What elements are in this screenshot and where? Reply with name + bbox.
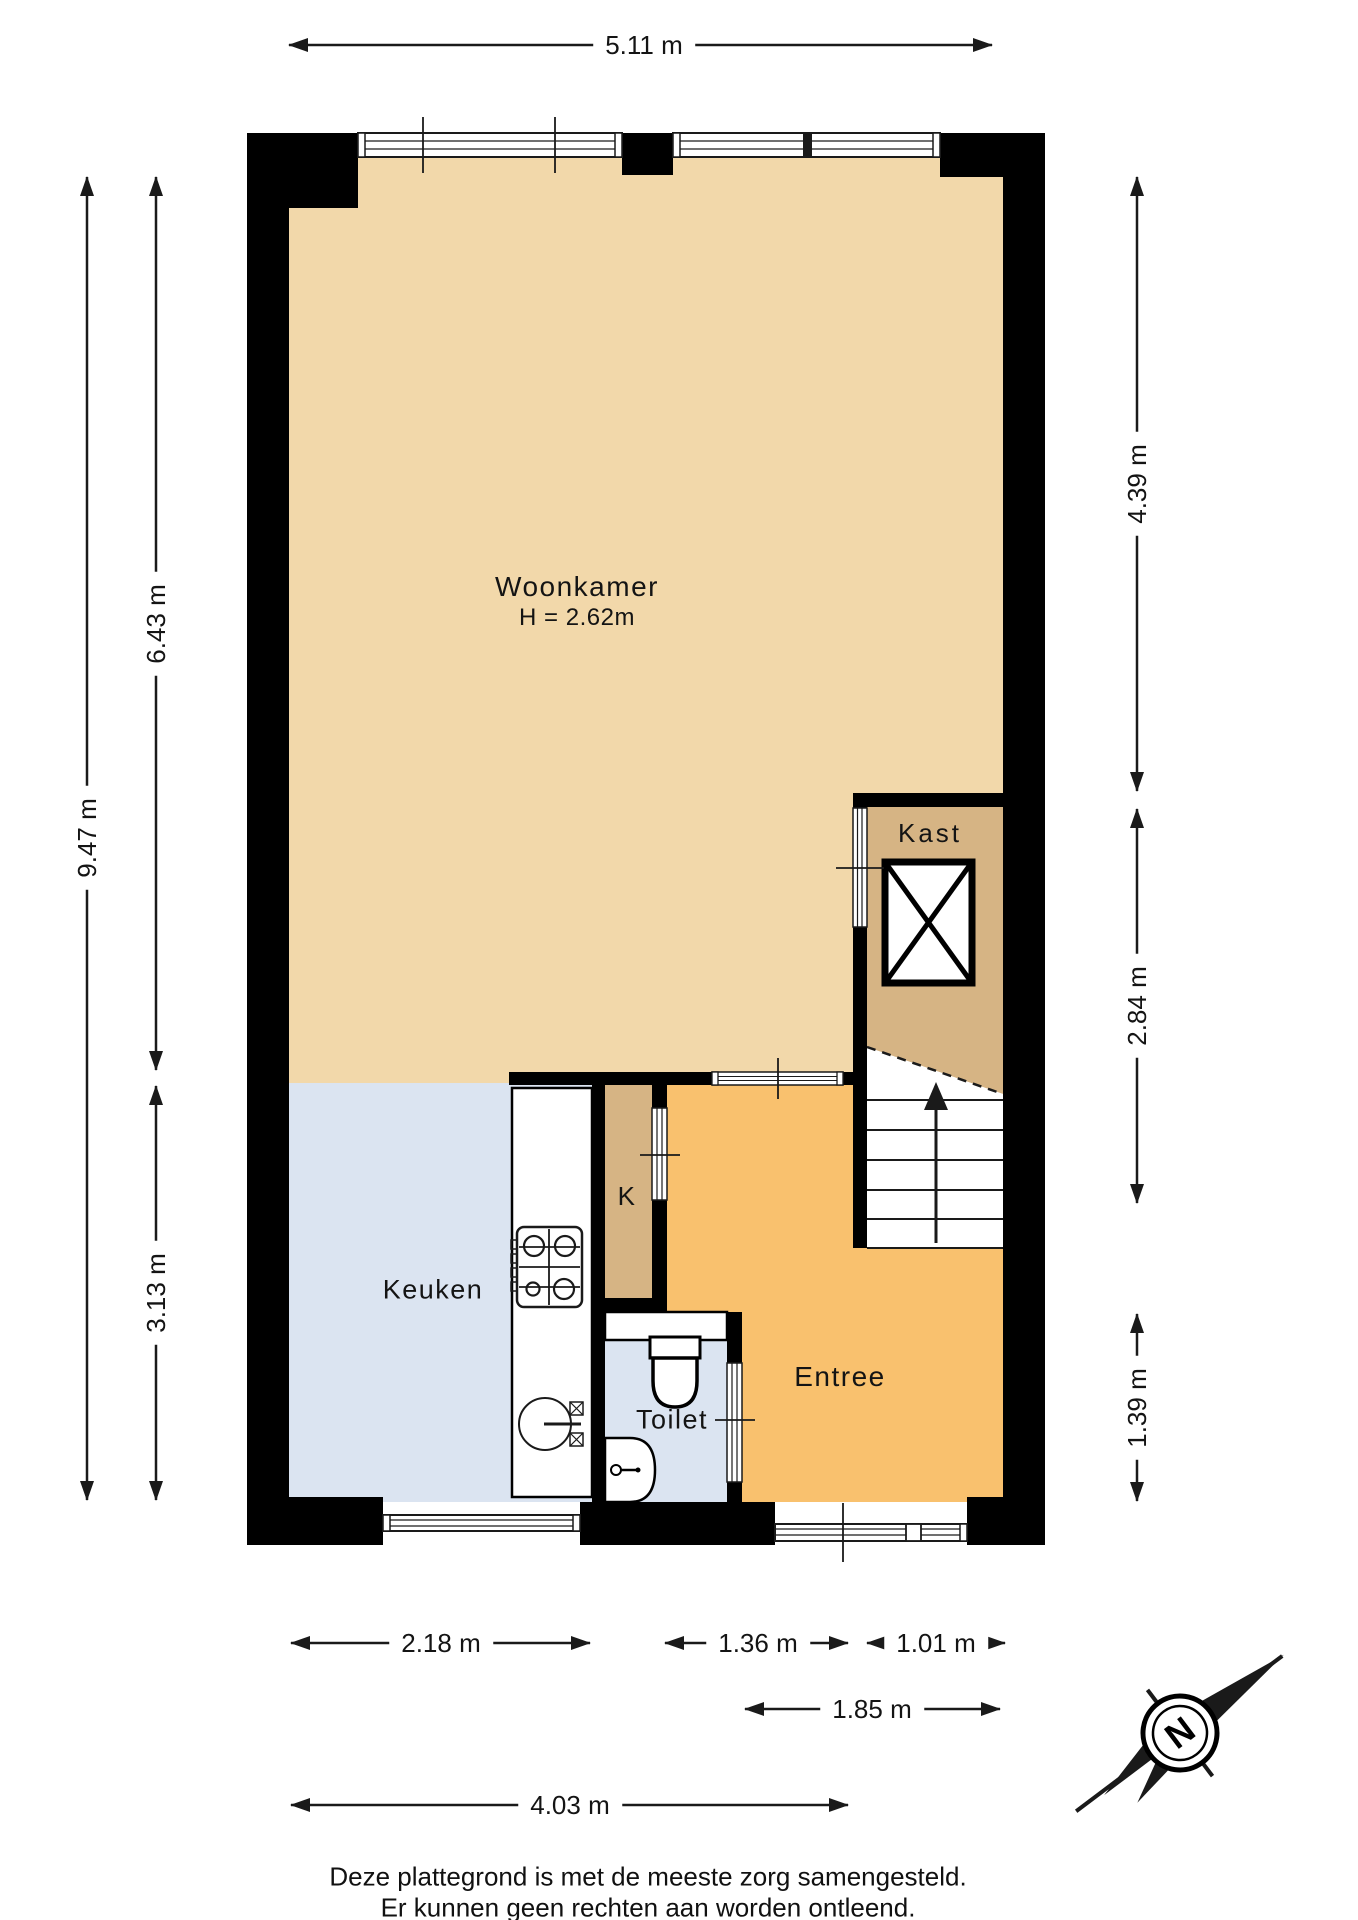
wall-top-left-corner <box>247 133 358 208</box>
room-label-toilet: Toilet <box>636 1407 708 1434</box>
dim-label-right-upper: 4.39 m <box>1122 432 1152 536</box>
wall-k-closet-bottom <box>605 1298 667 1312</box>
dim-label-top-width: 5.11 m <box>593 30 695 60</box>
dim-label-left-total: 9.47 m <box>72 786 102 890</box>
entree-floor-mid <box>667 1248 1003 1312</box>
dim-label-bottom-stairs: 1.01 m <box>884 1628 988 1658</box>
entree-floor-lower <box>742 1312 1003 1502</box>
dim-label-bottom-entree: 1.85 m <box>820 1694 924 1724</box>
floorplan-drawing: N <box>0 0 1358 1920</box>
woonkamer-floor-lower <box>289 793 853 1083</box>
wall-left <box>247 133 289 1545</box>
disclaimer-line-1: Deze plattegrond is met de meeste zorg s… <box>329 1862 966 1893</box>
toilet-sink-icon <box>605 1438 655 1502</box>
wall-bottom-left-corner <box>247 1497 383 1545</box>
wall-bottom-right-corner <box>967 1497 1045 1545</box>
wall-top-pier <box>622 133 673 175</box>
wall-bottom-middle <box>580 1502 775 1545</box>
woonkamer-floor <box>289 155 1003 793</box>
disclaimer-line-2: Er kunnen geen rechten aan worden ontlee… <box>381 1893 916 1920</box>
dim-label-right-middle: 2.84 m <box>1122 954 1152 1058</box>
room-label-k-closet: K <box>618 1183 637 1209</box>
dim-label-left-lower: 3.13 m <box>141 1241 171 1345</box>
front-door <box>775 1503 967 1562</box>
compass-icon: N <box>1044 1612 1317 1855</box>
window-top-2 <box>673 133 940 157</box>
room-label-keuken: Keuken <box>383 1277 484 1304</box>
room-label-woonkamer: Woonkamer <box>495 573 659 601</box>
dim-label-left-upper: 6.43 m <box>141 572 171 676</box>
wall-right <box>1003 133 1045 1545</box>
room-note-woonkamer-height: H = 2.62m <box>519 606 635 630</box>
shaft-box-icon <box>885 862 972 983</box>
wall-top-right-corner <box>940 133 1045 177</box>
floorplan-page: N Woonkamer H = 2.62m Kast K Keuken Toil… <box>0 0 1358 1920</box>
room-label-entree: Entree <box>794 1363 886 1391</box>
kitchen-counter <box>511 1088 592 1497</box>
wall-kast-top <box>853 793 1003 807</box>
wall-counter-right <box>592 1085 605 1502</box>
room-label-kast: Kast <box>898 820 962 846</box>
window-keuken <box>383 1515 580 1531</box>
dim-label-bottom-middle: 1.36 m <box>706 1628 810 1658</box>
dim-label-bottom-keuken: 2.18 m <box>389 1628 493 1658</box>
window-mullion <box>803 133 812 157</box>
dim-label-right-lower: 1.39 m <box>1122 1356 1152 1460</box>
dim-label-bottom-total: 4.03 m <box>518 1790 622 1820</box>
toilet-bowl-icon <box>650 1337 700 1407</box>
